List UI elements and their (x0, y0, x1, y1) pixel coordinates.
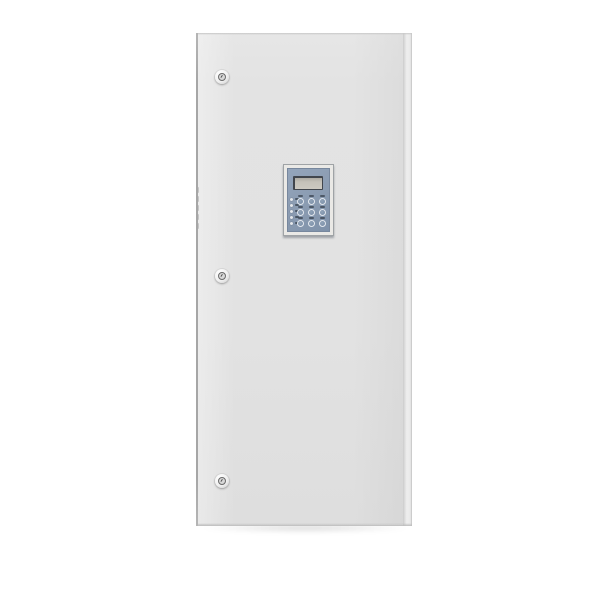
keypad-button-label (320, 195, 325, 197)
led-dot (290, 210, 293, 213)
hmi-panel (283, 164, 334, 236)
keypad-button[interactable] (297, 209, 304, 216)
led-dot (290, 198, 293, 201)
lcd-display (293, 176, 323, 190)
led-dot (290, 222, 293, 225)
latch-knob[interactable] (215, 269, 229, 283)
keypad-button-label (320, 206, 325, 208)
hinge-mark (196, 205, 199, 211)
cabinet-door (198, 34, 403, 524)
cabinet-top-edge (196, 33, 412, 35)
hinge-mark (196, 187, 199, 193)
led-dot (290, 216, 293, 219)
lcd-screen (295, 178, 322, 189)
keypad-button-label (309, 217, 314, 219)
keypad-button-label (320, 217, 325, 219)
keypad-button-label (298, 195, 303, 197)
led-dot (290, 204, 293, 207)
latch-knob[interactable] (215, 474, 229, 488)
keypad-button-label (309, 206, 314, 208)
keypad-button-label (309, 195, 314, 197)
keypad-button-label (298, 217, 303, 219)
keypad-button[interactable] (319, 198, 326, 205)
keypad-button[interactable] (308, 220, 315, 227)
keypad-button[interactable] (308, 209, 315, 216)
hinge-mark (196, 196, 199, 202)
latch-knob[interactable] (215, 70, 229, 84)
product-image (0, 0, 600, 600)
keypad-button[interactable] (297, 198, 304, 205)
cabinet-bottom-edge (196, 523, 412, 526)
keypad-button-label (298, 206, 303, 208)
cabinet-left-edge (196, 33, 198, 526)
keypad-button[interactable] (319, 220, 326, 227)
hinge-mark (196, 223, 199, 229)
hinge-mark (196, 214, 199, 220)
cabinet-side-panel (403, 33, 412, 526)
keypad-button[interactable] (319, 209, 326, 216)
enclosure-cabinet (196, 33, 412, 526)
keypad-button[interactable] (297, 220, 304, 227)
hmi-panel-face (287, 168, 330, 232)
keypad-button[interactable] (308, 198, 315, 205)
